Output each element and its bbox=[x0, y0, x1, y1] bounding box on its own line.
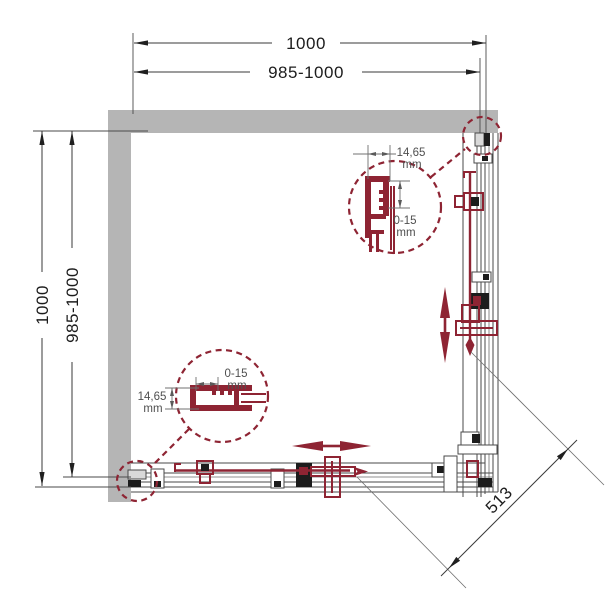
door-edge-pointer bbox=[354, 467, 368, 476]
adjust-range-value: 0-15 bbox=[393, 215, 416, 227]
profile-width-unit: mm bbox=[402, 159, 421, 171]
corner-bracket bbox=[444, 456, 457, 492]
wall-top bbox=[108, 110, 498, 133]
wall-profile-section-vertical bbox=[365, 176, 394, 254]
roller-block-accent bbox=[473, 296, 481, 305]
callout-connector bbox=[431, 149, 465, 177]
adjust-range-unit: mm bbox=[396, 227, 415, 239]
dimension-height-inner: 985-1000 bbox=[63, 131, 82, 477]
dim-height-inner-value: 985-1000 bbox=[63, 267, 82, 343]
shower-enclosure-dimension-diagram: 1000 985-1000 1000 985-1000 513 bbox=[0, 0, 607, 600]
corner-bracket-dark bbox=[472, 434, 480, 443]
door-bracket-dark bbox=[201, 464, 209, 471]
diagonal-extension-1 bbox=[471, 352, 604, 485]
measure-profile-width: 14,65 mm bbox=[353, 145, 425, 181]
profile-width-value: 14,65 bbox=[138, 391, 167, 403]
dimension-width-inner: 985-1000 bbox=[134, 63, 480, 82]
callout-detail-circle bbox=[176, 350, 268, 442]
dim-width-inner-value: 985-1000 bbox=[268, 63, 344, 82]
slide-arrow-horizontal-icon bbox=[292, 441, 371, 451]
wall-profile-clamp bbox=[128, 470, 146, 479]
wall-profile-clamp bbox=[475, 133, 484, 146]
dimension-height-outer: 1000 bbox=[33, 131, 52, 486]
slide-arrow-vertical-icon bbox=[440, 287, 450, 363]
profile-width-unit: mm bbox=[143, 403, 162, 415]
diagonal-dim-line bbox=[441, 440, 577, 576]
dim-width-outer-value: 1000 bbox=[286, 34, 326, 53]
corner-bracket bbox=[458, 445, 497, 454]
sliding-door-right bbox=[455, 172, 497, 477]
corner-dark-block bbox=[478, 478, 492, 487]
roller-axle bbox=[274, 481, 281, 487]
wall-left bbox=[108, 110, 131, 502]
diagram-canvas: 1000 985-1000 1000 985-1000 513 bbox=[0, 0, 607, 600]
adjust-range-unit: mm bbox=[227, 380, 246, 392]
dimension-width-outer: 1000 bbox=[134, 34, 486, 53]
measure-profile-width: 14,65 mm bbox=[138, 388, 199, 415]
roller-axle bbox=[483, 274, 489, 280]
adjust-range-value: 0-15 bbox=[224, 368, 247, 380]
dim-height-outer-value: 1000 bbox=[33, 285, 52, 325]
measure-adjust-range: 0-15 mm bbox=[388, 181, 417, 239]
callout-connector bbox=[152, 429, 189, 466]
door-bracket-dark bbox=[471, 197, 479, 206]
diagonal-extension-2 bbox=[357, 477, 466, 588]
extension-lines bbox=[33, 33, 486, 487]
wall-profile-dark bbox=[128, 480, 141, 487]
door-edge-pointer bbox=[466, 337, 475, 356]
roller-axle bbox=[482, 156, 488, 161]
dim-diagonal-value: 513 bbox=[482, 483, 517, 518]
wall-profile-dark bbox=[484, 133, 490, 146]
profile-width-value: 14,65 bbox=[397, 147, 426, 159]
